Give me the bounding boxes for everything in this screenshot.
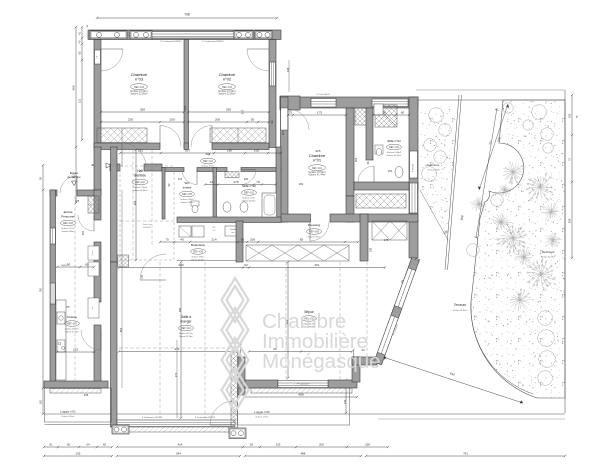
svg-text:Placard: Placard	[92, 250, 94, 255]
svg-text:n°03: n°03	[135, 77, 144, 82]
svg-text:145: 145	[141, 274, 144, 279]
svg-text:213: 213	[71, 173, 75, 178]
svg-text:F 90/220: F 90/220	[413, 163, 415, 172]
svg-text:REF 4.02: REF 4.02	[222, 87, 232, 89]
svg-text:Surface 9.56m²: Surface 9.56m²	[133, 186, 148, 189]
svg-text:Volume 9.80m³: Volume 9.80m³	[62, 230, 75, 233]
svg-text:Volume 5.35m³: Volume 5.35m³	[181, 201, 194, 204]
svg-text:Jardinière: Jardinière	[427, 163, 440, 167]
svg-text:200: 200	[215, 118, 220, 122]
svg-text:60: 60	[401, 111, 405, 115]
svg-text:50: 50	[251, 118, 255, 122]
svg-text:336: 336	[250, 238, 255, 242]
svg-text:F. Coulissante 240/215: F. Coulissante 240/215	[160, 40, 182, 43]
svg-text:350: 350	[140, 108, 145, 112]
svg-text:Volume 13.15m³: Volume 13.15m³	[386, 154, 401, 157]
svg-text:Surface 3.66m²: Surface 3.66m²	[62, 415, 75, 418]
svg-text:325: 325	[315, 149, 320, 153]
svg-text:293: 293	[244, 178, 249, 181]
svg-text:Volume 41.44m³: Volume 41.44m³	[308, 174, 326, 177]
svg-text:488: 488	[301, 452, 306, 456]
svg-text:181: 181	[299, 182, 304, 186]
svg-text:42: 42	[210, 180, 214, 184]
svg-text:manger: manger	[180, 320, 192, 324]
svg-text:150: 150	[388, 169, 393, 173]
svg-text:Loggia n°01: Loggia n°01	[60, 410, 76, 414]
svg-text:178: 178	[233, 180, 238, 184]
svg-text:Entrée: Entrée	[64, 210, 73, 214]
svg-text:90: 90	[67, 263, 71, 267]
svg-text:64: 64	[87, 443, 90, 447]
svg-text:65: 65	[241, 238, 245, 242]
svg-text:Surface 10.67m²: Surface 10.67m²	[65, 328, 79, 331]
svg-text:81: 81	[50, 443, 53, 447]
svg-text:n°02: n°02	[223, 77, 232, 82]
svg-text:70: 70	[165, 238, 169, 242]
svg-text:65: 65	[250, 443, 254, 447]
svg-text:383: 383	[178, 307, 182, 312]
svg-text:140: 140	[343, 399, 347, 404]
svg-text:280: 280	[183, 105, 187, 110]
svg-text:F 60: F 60	[97, 55, 99, 58]
svg-text:d'entrée: d'entrée	[134, 174, 146, 178]
svg-text:Volume 52.70m³: Volume 52.70m³	[179, 335, 193, 338]
svg-text:Surface 5.75m²: Surface 5.75m²	[243, 197, 256, 200]
svg-text:653: 653	[119, 327, 123, 332]
svg-text:P.6: P.6	[213, 227, 215, 229]
svg-text:273: 273	[174, 372, 178, 377]
svg-text:100: 100	[254, 149, 259, 153]
svg-text:Volume 10.30m³: Volume 10.30m³	[191, 259, 205, 262]
svg-text:Surface 3.77m²: Surface 3.77m²	[62, 227, 75, 230]
svg-text:760: 760	[40, 287, 43, 292]
svg-text:Monégasque: Monégasque	[262, 350, 381, 373]
svg-text:REF 4.09: REF 4.09	[309, 232, 319, 234]
svg-text:Frigo: Frigo	[92, 306, 94, 309]
svg-text:180: 180	[227, 149, 232, 153]
svg-text:175: 175	[384, 238, 389, 242]
svg-text:REF 4.06: REF 4.06	[63, 223, 73, 225]
svg-text:116: 116	[281, 130, 285, 135]
svg-text:235: 235	[76, 452, 81, 456]
svg-text:20/20: 20/20	[61, 265, 67, 267]
svg-text:313: 313	[79, 98, 82, 103]
svg-text:REF 4.03: REF 4.03	[134, 87, 144, 89]
svg-text:90: 90	[383, 111, 387, 115]
svg-text:Surface 31.08m²: Surface 31.08m²	[541, 256, 555, 259]
svg-text:442: 442	[133, 200, 137, 205]
svg-text:Volume 33.90m³: Volume 33.90m³	[218, 93, 236, 96]
svg-text:SDE n°01: SDE n°01	[387, 139, 401, 143]
svg-text:70: 70	[256, 180, 260, 184]
svg-text:219: 219	[73, 348, 78, 352]
svg-text:Volume 14.95m³: Volume 14.95m³	[242, 200, 256, 203]
svg-text:F. Coulissante 240/215: F. Coulissante 240/215	[195, 416, 216, 419]
svg-text:90: 90	[67, 443, 70, 447]
svg-text:350: 350	[226, 108, 231, 112]
svg-text:invités: invités	[183, 186, 192, 190]
svg-text:Hall: Hall	[137, 169, 143, 173]
svg-text:REF 4.08: REF 4.08	[193, 252, 203, 254]
svg-text:Surface 3.75m²: Surface 3.75m²	[202, 165, 215, 168]
svg-text:Chauffe: Chauffe	[230, 229, 236, 231]
svg-text:Surface 5.06m²: Surface 5.06m²	[387, 151, 402, 154]
svg-text:60: 60	[85, 263, 89, 267]
svg-text:Salle à: Salle à	[181, 315, 191, 319]
svg-text:65: 65	[103, 443, 106, 447]
svg-text:PF. Coulissante: PF. Coulissante	[297, 382, 309, 385]
svg-text:F. Coulis 240-10: F. Coulis 240-10	[317, 94, 330, 96]
svg-text:90: 90	[270, 120, 274, 123]
svg-text:40: 40	[180, 238, 184, 242]
svg-text:F. Coulissante 240/215: F. Coulissante 240/215	[202, 40, 224, 43]
svg-text:Dressing: Dressing	[308, 223, 320, 227]
svg-text:h.6: h.6	[213, 230, 216, 232]
svg-text:158: 158	[365, 443, 370, 447]
svg-text:100: 100	[40, 399, 43, 404]
svg-text:138: 138	[370, 247, 373, 252]
svg-text:REF 4.10: REF 4.10	[181, 328, 191, 330]
svg-text:REF 4.01: REF 4.01	[312, 168, 322, 170]
svg-text:368: 368	[460, 215, 465, 221]
svg-text:250: 250	[128, 118, 133, 122]
svg-text:Surface 6.91m²: Surface 6.91m²	[308, 236, 321, 239]
svg-text:708: 708	[184, 13, 190, 17]
svg-text:Terrasse: Terrasse	[454, 303, 466, 307]
svg-text:214: 214	[211, 238, 216, 242]
svg-text:222: 222	[82, 230, 85, 235]
svg-text:Loggia n°02: Loggia n°02	[254, 410, 270, 414]
svg-text:Surface 4.06m²: Surface 4.06m²	[428, 169, 441, 172]
svg-text:Jardinière: Jardinière	[541, 250, 555, 254]
svg-text:REF 4.05: REF 4.05	[182, 194, 192, 196]
svg-text:100: 100	[169, 118, 174, 122]
svg-text:466: 466	[71, 85, 75, 90]
svg-text:544: 544	[176, 452, 181, 456]
svg-text:Cuisine: Cuisine	[67, 315, 78, 319]
svg-text:Surface 54.89m²: Surface 54.89m²	[453, 309, 468, 312]
svg-text:200: 200	[319, 443, 324, 447]
svg-text:235: 235	[84, 393, 89, 397]
svg-text:133: 133	[276, 443, 281, 447]
svg-text:Volume 27.74m³: Volume 27.74m³	[65, 331, 79, 334]
svg-text:161: 161	[138, 149, 143, 153]
svg-text:REF 4.02: REF 4.02	[389, 147, 399, 149]
svg-text:Personnel: Personnel	[61, 215, 75, 219]
svg-text:REF 4.07: REF 4.07	[67, 324, 77, 326]
svg-text:Surface 2.06m²: Surface 2.06m²	[181, 198, 194, 201]
svg-text:eau: eau	[232, 232, 235, 234]
svg-text:REF 4.04: REF 4.04	[203, 161, 213, 163]
svg-text:135: 135	[568, 113, 572, 118]
svg-text:Dgt: Dgt	[206, 152, 211, 156]
svg-text:394: 394	[354, 157, 358, 162]
svg-text:163: 163	[178, 178, 183, 181]
svg-text:Volume 33.90m³: Volume 33.90m³	[130, 93, 148, 96]
svg-text:Gaine a/m: Gaine a/m	[142, 224, 152, 226]
svg-text:Surface 3.96m²: Surface 3.96m²	[192, 256, 205, 259]
svg-text:491: 491	[314, 263, 319, 267]
svg-text:600x200: 600x200	[143, 227, 152, 229]
svg-text:175: 175	[317, 111, 322, 115]
svg-text:Surface 7.70m²: Surface 7.70m²	[256, 416, 269, 419]
svg-text:REF 4.02: REF 4.02	[135, 182, 145, 184]
svg-text:791: 791	[463, 452, 468, 456]
svg-text:65: 65	[300, 238, 304, 242]
svg-text:F. Coulissante 240/215: F. Coulissante 240/215	[142, 416, 163, 419]
svg-text:WC: WC	[185, 181, 191, 185]
svg-text:n°01: n°01	[313, 158, 322, 163]
svg-text:414: 414	[178, 443, 183, 447]
svg-text:Buanderie: Buanderie	[191, 243, 205, 247]
svg-text:138: 138	[286, 67, 290, 72]
svg-text:Volume 24.86m³: Volume 24.86m³	[132, 189, 147, 192]
svg-text:75: 75	[289, 111, 293, 115]
svg-text:327: 327	[241, 109, 245, 114]
svg-text:62: 62	[244, 263, 248, 267]
svg-text:207: 207	[185, 149, 190, 153]
svg-text:REF 4.02: REF 4.02	[244, 193, 254, 195]
svg-text:358: 358	[568, 218, 572, 223]
svg-text:125: 125	[75, 199, 80, 203]
